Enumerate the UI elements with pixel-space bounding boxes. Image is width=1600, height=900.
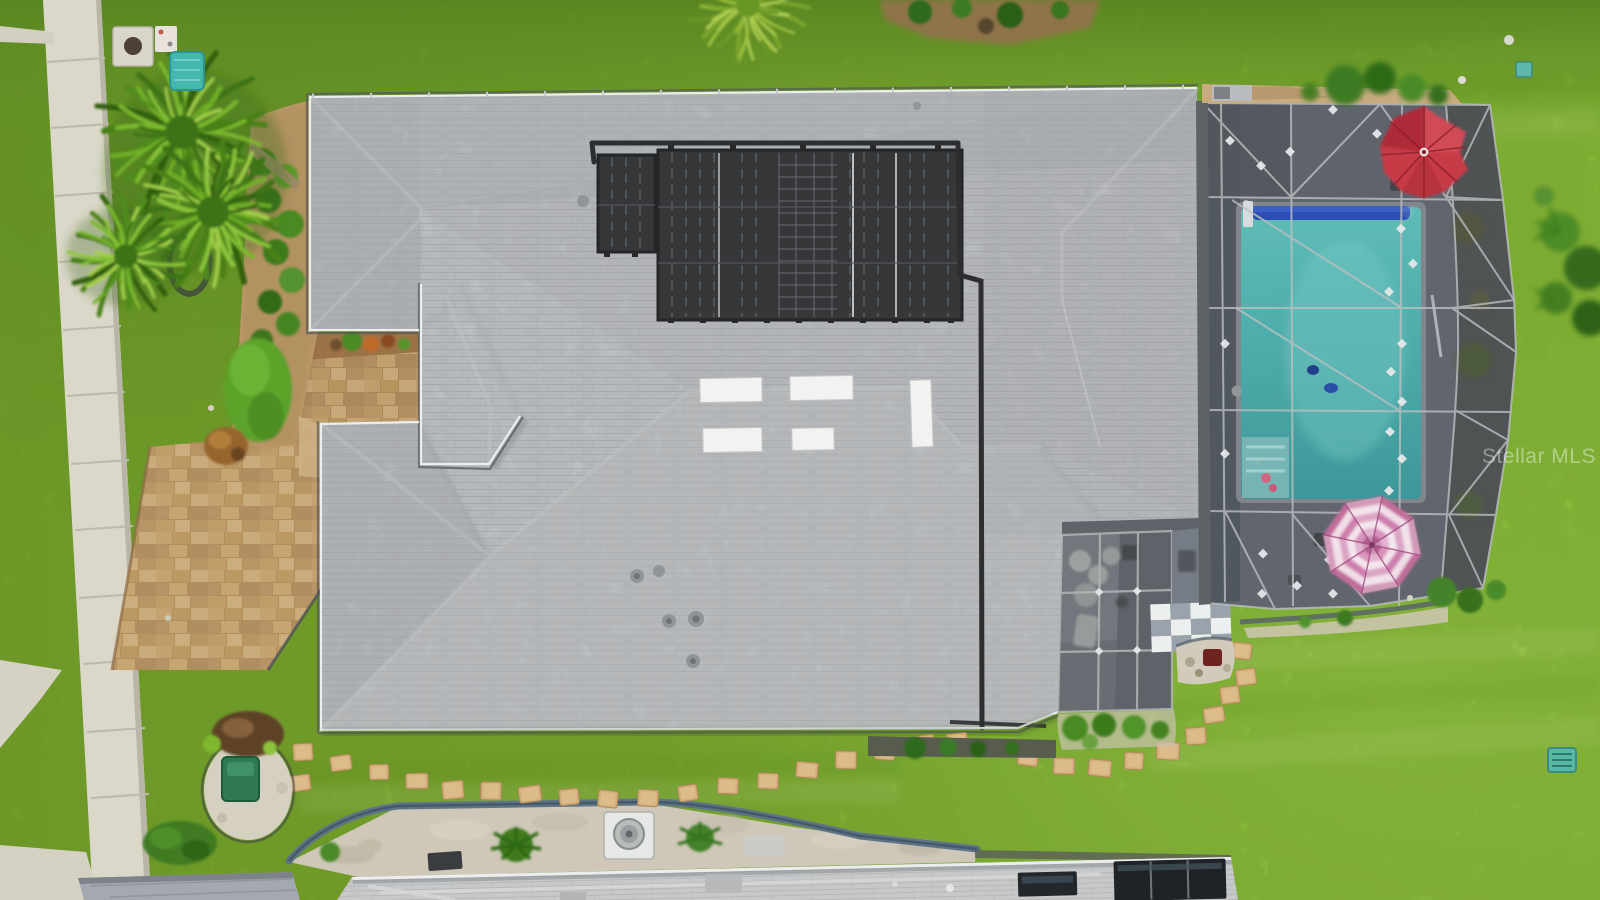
svg-text:Stellar MLS: Stellar MLS <box>1482 445 1596 468</box>
